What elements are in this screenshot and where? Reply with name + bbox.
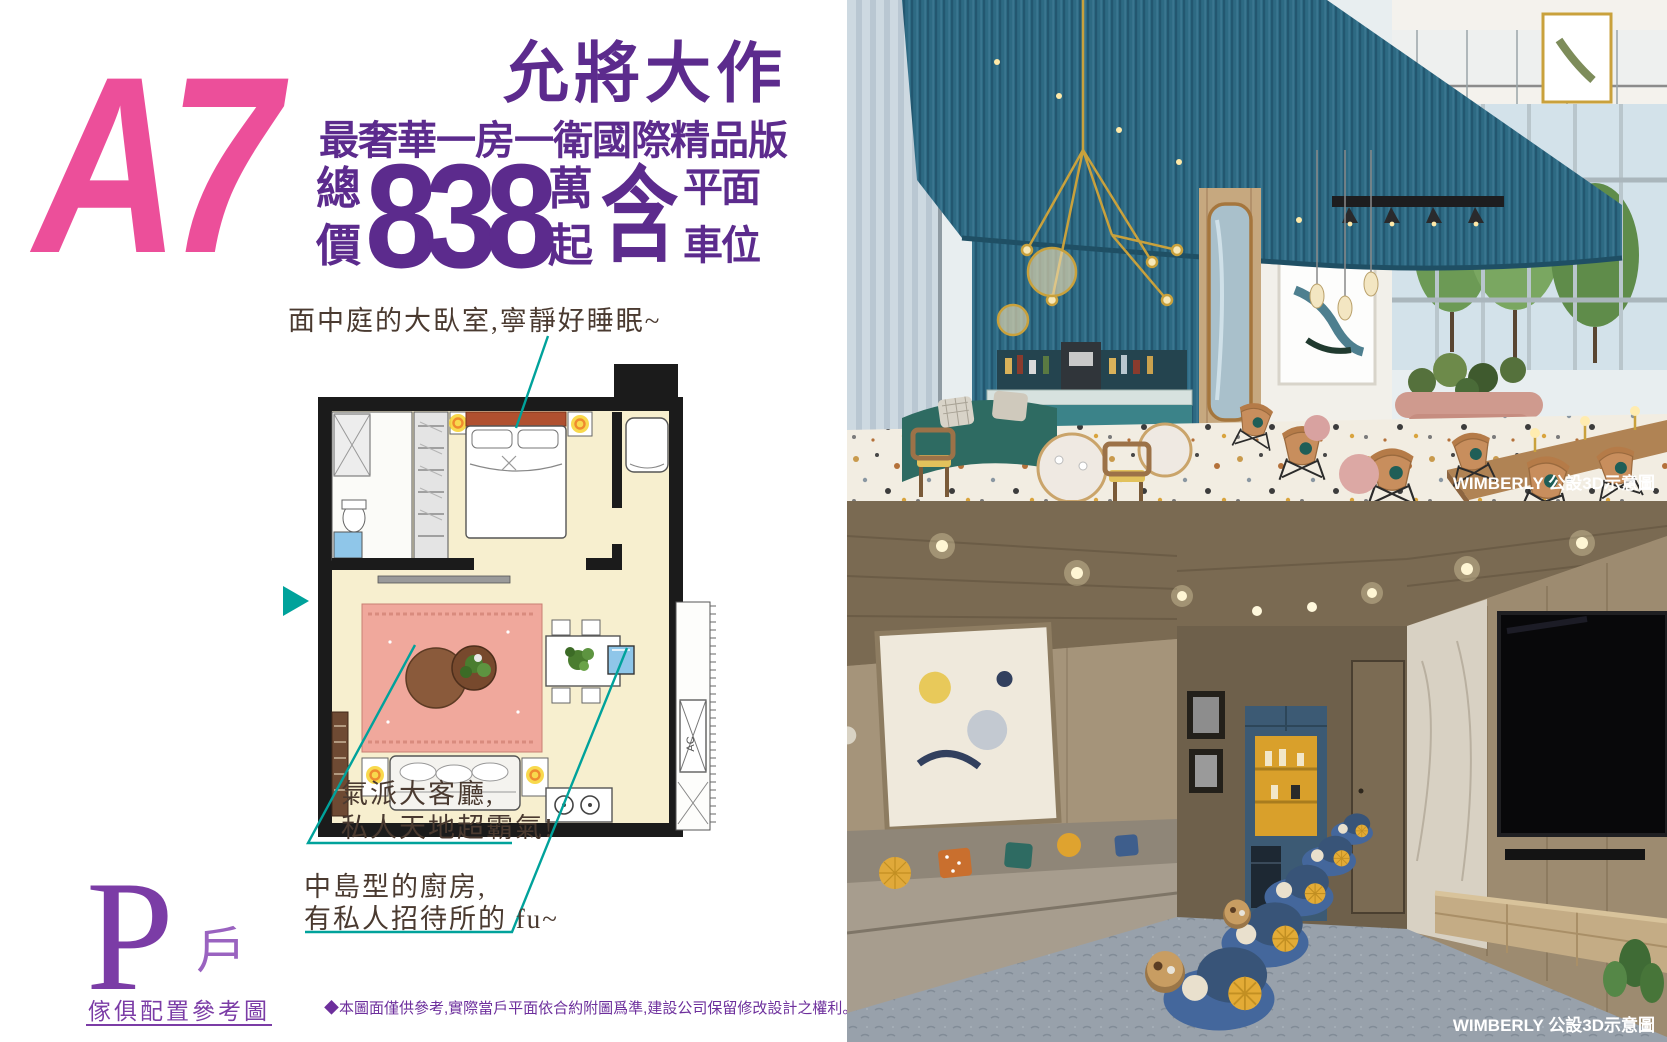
photo-media-room: WIMBERLY 公設3D示意圖	[847, 501, 1667, 1042]
price-prefix-top: 總	[316, 166, 361, 211]
photo-column: WIMBERLY 公設3D示意圖	[847, 0, 1667, 1042]
annotation-living: 氣派大客廳, 私人天地超霸氣!	[341, 777, 555, 845]
caption-rule	[86, 1024, 272, 1026]
unit-type-caption: 傢俱配置參考圖	[88, 992, 270, 1026]
price-unit-bottom: 起	[548, 223, 593, 268]
photo-lounge: WIMBERLY 公設3D示意圖	[847, 0, 1667, 501]
price-amount: 838	[365, 159, 545, 274]
annotation-living-line2: 私人天地超霸氣!	[341, 811, 555, 845]
price-unit-top: 萬	[548, 166, 593, 211]
price-unit: 萬 起	[548, 166, 593, 268]
lounge-illustration: WIMBERLY 公設3D示意圖	[847, 0, 1667, 501]
plan-wardrobe	[414, 412, 448, 560]
disclaimer: ◆本圖面僅供參考,實際當戶平面依合約附圖爲準,建設公司保留修改設計之權利。	[324, 997, 857, 1018]
price-lockup: 總 價 838 萬 起 含 平面 車位	[316, 162, 759, 272]
plan-kitchen	[546, 788, 612, 822]
photo-credit: WIMBERLY 公設3D示意圖	[1453, 473, 1655, 493]
price-include-line2: 車位	[683, 226, 759, 266]
annotation-kitchen-line1: 中島型的廚房,	[304, 871, 559, 903]
annotation-living-line1: 氣派大客廳,	[341, 777, 555, 811]
price-prefix-bottom: 價	[316, 223, 361, 268]
plan-balcony: AC	[676, 602, 716, 830]
annotation-kitchen: 中島型的廚房, 有私人招待所的 fu~	[304, 871, 559, 935]
project-title: 允將大作	[503, 20, 787, 116]
price-include-detail: 平面 車位	[683, 168, 759, 266]
flyer-page: A7 允將大作 最奢華一房一衛國際精品版 總 價 838 萬 起 含 平面 車位…	[0, 0, 1667, 1042]
unit-type-suffix: 戶	[196, 926, 246, 976]
price-include-char: 含	[601, 165, 678, 269]
annotation-bedroom: 面中庭的大臥室,寧靜好睡眠~	[288, 299, 661, 338]
ac-label: AC	[685, 736, 697, 751]
media-room-illustration: WIMBERLY 公設3D示意圖	[847, 501, 1667, 1042]
price-include-line1: 平面	[683, 168, 759, 208]
promo-panel: A7 允將大作 最奢華一房一衛國際精品版 總 價 838 萬 起 含 平面 車位…	[0, 0, 847, 1042]
price-prefix: 總 價	[316, 166, 361, 268]
unit-code: A7	[34, 40, 269, 292]
photo-credit: WIMBERLY 公設3D示意圖	[1453, 1015, 1655, 1035]
annotation-kitchen-line2: 有私人招待所的 fu~	[304, 903, 559, 935]
plan-bathroom	[332, 412, 412, 560]
